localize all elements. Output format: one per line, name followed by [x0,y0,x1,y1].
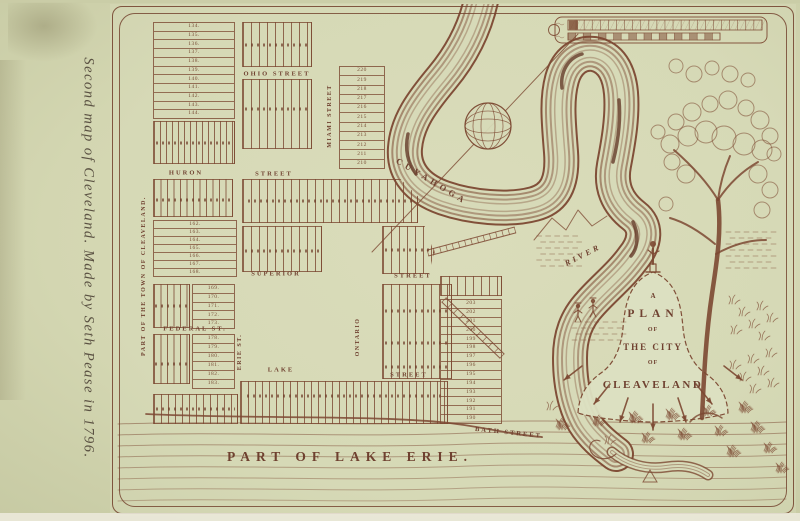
lot-row: 135. [154,31,234,40]
lot-row: 140. [154,74,234,83]
lot-number: 194 [466,381,476,387]
lot-number: 165. [189,246,201,252]
lot-number: 180. [208,354,220,360]
street-label-lake-2: Street [390,372,428,379]
lot-row: 211 [340,149,384,158]
lot-block [153,121,235,164]
lot-number: 140. [188,77,200,83]
micro-lot-numbers [247,395,441,398]
street-label-miami: Miami Street [327,84,333,148]
lot-number: 169. [208,286,220,292]
street-label-huron-2: Street [255,171,293,178]
cartouche-line-cleaveland: Cleaveland [603,379,704,391]
lot-number: 198 [466,345,476,351]
label-part-of-town: Part of the Town of Cleaveland. [141,196,147,356]
street-label-ohio: Ohio Street [244,71,311,78]
lot-number: 134. [188,24,200,30]
lot-row: 167. [154,260,236,268]
lot-block: 162.163.164.165.166.167.168. [153,220,237,277]
lot-row: 201 [441,317,501,326]
lot-number: 193 [466,390,476,396]
lot-number: 164. [189,238,201,244]
street-label-superior: Superior [251,271,301,278]
lot-row: 215 [340,112,384,121]
lot-row: 144. [154,109,234,118]
lot-row: 141. [154,83,234,92]
lot-number: 195 [466,372,476,378]
lot-number: 191 [466,407,476,413]
lot-row: 164. [154,236,236,244]
lot-number: 135. [188,33,200,39]
micro-lot-numbers [385,249,432,252]
lot-block [153,394,238,424]
micro-lot-numbers [245,107,309,110]
lot-row: 182. [193,370,234,379]
lot-row: 197 [441,352,501,361]
lot-number: 136. [188,42,200,48]
lot-block [240,381,448,424]
lot-number: 197 [466,354,476,360]
street-label-ontario: Ontario [355,318,361,357]
lot-number: 216 [357,105,367,111]
micro-lot-numbers [155,362,188,365]
slide-caption: Second map of Cleveland. Made by Seth Pe… [80,57,97,458]
lot-number: 144. [188,111,200,117]
lot-row: 171. [193,302,234,311]
lot-number: 162. [189,222,201,228]
lot-block [153,334,190,384]
lot-number: 163. [189,230,201,236]
lot-row: 213 [340,131,384,140]
lake-erie-label: Part of Lake Erie. [227,449,473,465]
lot-row: 136. [154,39,234,48]
lot-number: 178. [208,336,220,342]
lot-row: 210 [340,159,384,168]
lot-row: 191 [441,405,501,414]
lot-block [153,284,190,328]
lot-number: 172. [208,313,220,319]
lot-row: 139. [154,66,234,75]
map-canvas: 134.135.136.137.138.139.140.141.142.143.… [110,4,796,516]
lot-number: 143. [188,103,200,109]
lot-row: 217 [340,94,384,103]
lot-row: 178. [193,335,234,343]
street-label-federal: Federal St. [163,326,226,333]
lot-row: 181. [193,361,234,370]
slide-edge-bottom [0,513,800,521]
lot-number: 142. [188,94,200,100]
lot-number: 137. [188,50,200,56]
lot-number: 182. [208,372,220,378]
lot-number: 139. [188,68,200,74]
lot-number: 213 [357,133,367,139]
cartouche-line-the-city: the City [623,342,683,352]
slide-blotch [8,2,98,62]
micro-lot-numbers [245,43,309,46]
lot-block [242,226,322,272]
lot-row: 134. [154,23,234,31]
lot-block [440,276,502,296]
street-label-huron: Huron [169,170,203,177]
lot-number: 171. [208,304,220,310]
lot-row: 165. [154,244,236,252]
lot-block: 134.135.136.137.138.139.140.141.142.143.… [153,22,235,119]
lot-row: 195 [441,370,501,379]
lot-number: 212 [357,143,367,149]
lot-row: 192 [441,396,501,405]
lot-block [242,79,312,149]
cartouche-line-plan: Plan [627,308,678,320]
street-label-superior-2: Street [394,273,432,280]
lot-number: 179. [208,345,220,351]
lot-number: 217 [357,96,367,102]
lot-row: 203 [441,300,501,308]
lot-row: 183. [193,379,234,388]
lot-row: 199 [441,334,501,343]
lot-row: 198 [441,343,501,352]
lot-number: 203 [466,301,476,307]
lot-row: 143. [154,101,234,110]
lot-block: 2032022012001991981971961951941931921911… [440,299,502,424]
lot-row: 169. [193,285,234,293]
lot-row: 196 [441,361,501,370]
lot-number: 220 [357,68,367,74]
lot-number: 202 [466,310,476,316]
lot-number: 192 [466,399,476,405]
lot-number: 200 [466,328,476,334]
micro-lot-numbers [156,141,231,144]
lot-row: 137. [154,48,234,57]
micro-lot-numbers [155,305,188,308]
lot-row: 190 [441,414,501,423]
street-label-lake: Lake [268,367,294,374]
lot-row: 218 [340,85,384,94]
slide-blotch [0,60,26,400]
lot-row: 216 [340,103,384,112]
micro-lot-numbers [156,198,229,201]
lot-block [242,22,312,67]
lot-number: 138. [188,59,200,65]
slide-edge-top [0,0,800,3]
lot-block: 220219218217216215214213212211210 [339,66,385,169]
lot-number: 168. [189,270,201,276]
lot-block [382,226,434,274]
lot-row: 163. [154,228,236,236]
lot-number: 211 [357,152,367,158]
lot-row: 220 [340,67,384,75]
lot-number: 199 [466,337,476,343]
lot-number: 215 [357,115,367,121]
lot-number: 210 [357,161,367,167]
lot-row: 219 [340,75,384,84]
lot-number: 141. [188,85,200,91]
cartouche-line-of1: of [648,327,658,333]
lot-block [242,179,418,223]
lot-number: 183. [208,381,220,387]
lot-row: 172. [193,310,234,319]
lot-number: 218 [357,87,367,93]
lot-number: 167. [189,262,201,268]
lot-number: 201 [466,319,476,325]
lot-number: 170. [208,295,220,301]
lot-row: 179. [193,343,234,352]
lot-row: 212 [340,140,384,149]
lot-number: 181. [208,363,220,369]
lot-row: 142. [154,92,234,101]
lot-row: 180. [193,352,234,361]
lot-row: 170. [193,293,234,302]
lot-number: 166. [189,254,201,260]
lot-number: 190 [466,416,476,422]
lot-block: 178.179.180.181.182.183. [192,334,235,389]
lot-row: 193 [441,388,501,397]
lot-block [153,179,233,217]
lot-row: 138. [154,57,234,66]
lot-number: 196 [466,363,476,369]
lot-row: 194 [441,379,501,388]
lot-row: 202 [441,308,501,317]
lot-number: 219 [357,78,367,84]
lot-row: 162. [154,221,236,228]
slide-photo: Second map of Cleveland. Made by Seth Pe… [0,0,800,521]
lot-row: 166. [154,252,236,260]
lot-row: 214 [340,122,384,131]
cartouche-line-a: A [650,292,655,300]
lot-block: 169.170.171.172.173. [192,284,235,329]
lot-row: 200 [441,326,501,335]
micro-lot-numbers [248,200,412,203]
street-label-erie: Erie St. [237,334,243,371]
lot-row: 168. [154,268,236,276]
cartouche-line-of2: of [648,360,658,366]
micro-lot-numbers [245,250,318,253]
lot-number: 214 [357,124,367,130]
micro-lot-numbers [156,408,234,411]
